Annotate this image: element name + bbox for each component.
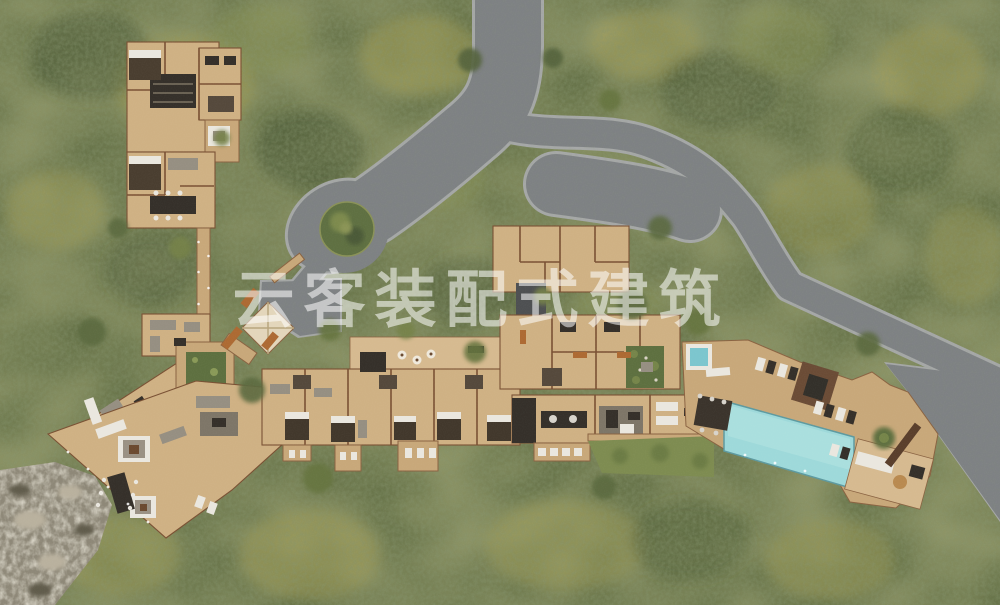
watermark-text: 云客装配式建筑 [232, 269, 729, 331]
site-plan-rendering: 云客装配式建筑 [0, 0, 1000, 605]
